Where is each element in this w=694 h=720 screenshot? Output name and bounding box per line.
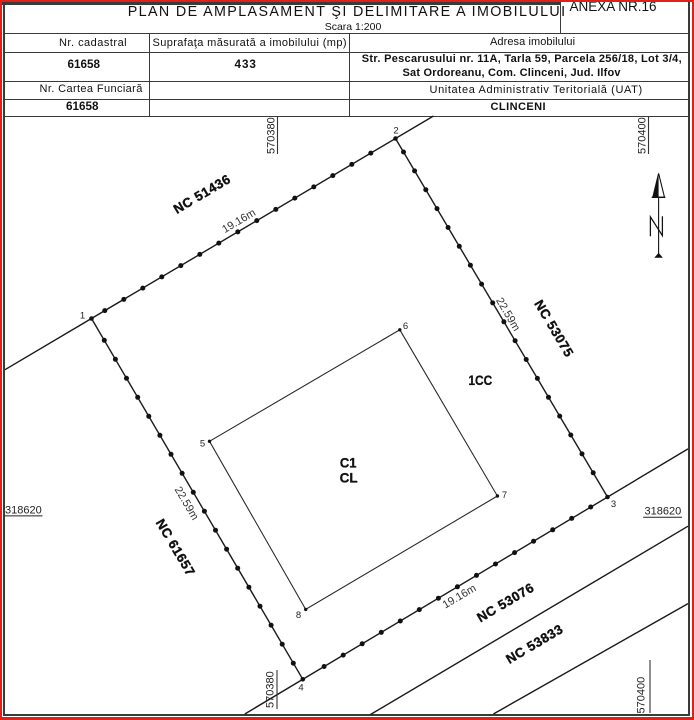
svg-text:6: 6 — [403, 321, 408, 332]
svg-text:NC 53833: NC 53833 — [503, 621, 566, 666]
svg-text:4: 4 — [298, 682, 303, 693]
svg-text:7: 7 — [502, 490, 507, 501]
svg-text:NC 51436: NC 51436 — [171, 171, 234, 216]
svg-text:NC 53076: NC 53076 — [474, 580, 537, 625]
svg-text:8: 8 — [296, 610, 301, 621]
svg-text:570400: 570400 — [636, 677, 648, 714]
svg-text:318620: 318620 — [645, 506, 682, 518]
svg-text:3: 3 — [611, 499, 616, 510]
svg-text:318620: 318620 — [5, 505, 42, 517]
svg-text:NC 53075: NC 53075 — [531, 297, 576, 360]
svg-text:2: 2 — [393, 126, 398, 137]
svg-text:570400: 570400 — [637, 117, 649, 154]
svg-text:CL: CL — [340, 470, 358, 486]
svg-text:570380: 570380 — [265, 671, 277, 708]
svg-text:22.59m: 22.59m — [172, 485, 201, 523]
svg-text:NC 61657: NC 61657 — [153, 516, 198, 579]
svg-text:1CC: 1CC — [468, 372, 492, 388]
svg-text:570380: 570380 — [266, 117, 278, 154]
svg-text:1: 1 — [80, 310, 85, 321]
svg-text:5: 5 — [200, 439, 205, 450]
svg-text:C1: C1 — [340, 455, 357, 471]
